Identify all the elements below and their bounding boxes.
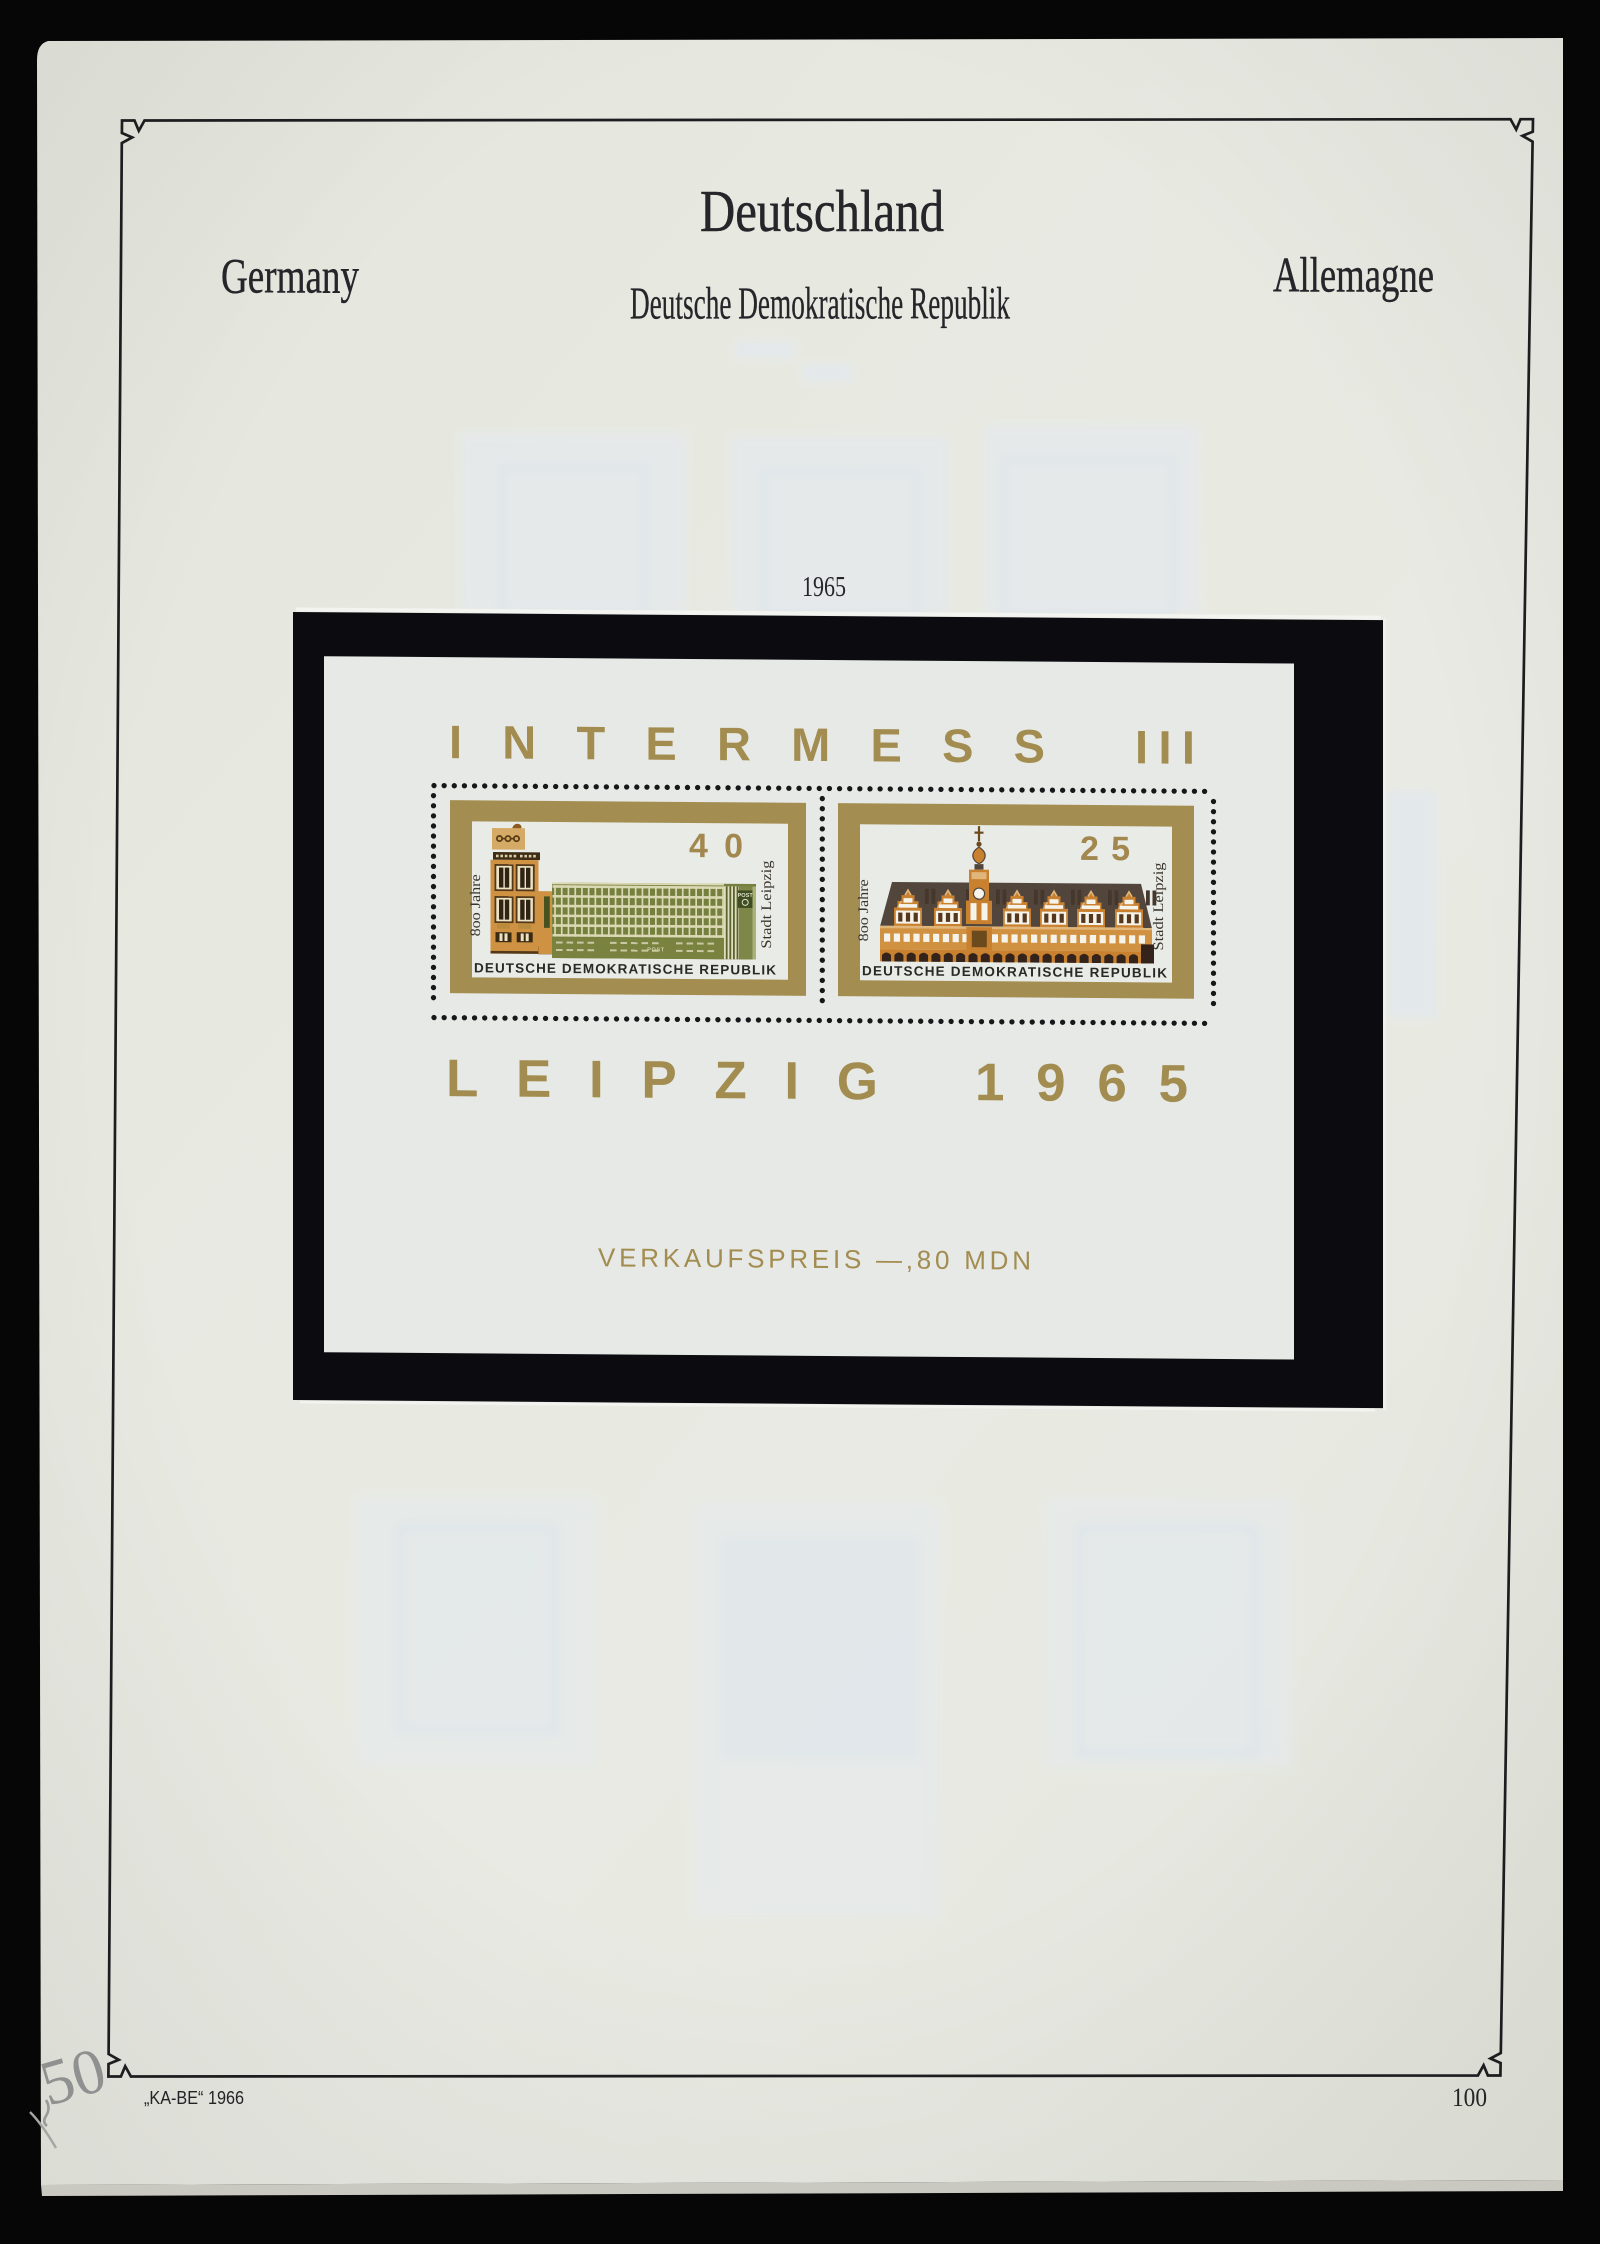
svg-text:Stadt Leipzig: Stadt Leipzig [1151,862,1167,950]
svg-text:POST: POST [738,893,754,899]
svg-text:1965: 1965 [802,571,846,603]
svg-text:Deutsche Demokratische Republi: Deutsche Demokratische Republik [630,279,1010,329]
svg-text:VERKAUFSPREIS —,80 MDN: VERKAUFSPREIS —,80 MDN [598,1242,1031,1275]
svg-text:POST: POST [647,947,665,953]
svg-text:100: 100 [1452,2083,1487,2112]
svg-text:Allemagne: Allemagne [1273,247,1434,303]
svg-text:„KA-BE“ 1966: „KA-BE“ 1966 [144,2087,244,2108]
svg-text:DEUTSCHE DEMOKRATISCHE REPUBLI: DEUTSCHE DEMOKRATISCHE REPUBLIK [474,960,776,977]
svg-text:Stadt Leipzig: Stadt Leipzig [759,860,775,948]
svg-text:8oo Jahre: 8oo Jahre [856,879,872,941]
svg-text:DEUTSCHE DEMOKRATISCHE REPUBLI: DEUTSCHE DEMOKRATISCHE REPUBLIK [862,963,1167,980]
svg-text:Germany: Germany [221,248,359,304]
svg-text:III: III [1135,720,1195,773]
svg-text:8oo Jahre: 8oo Jahre [468,874,484,936]
svg-text:Deutschland: Deutschland [700,178,944,244]
